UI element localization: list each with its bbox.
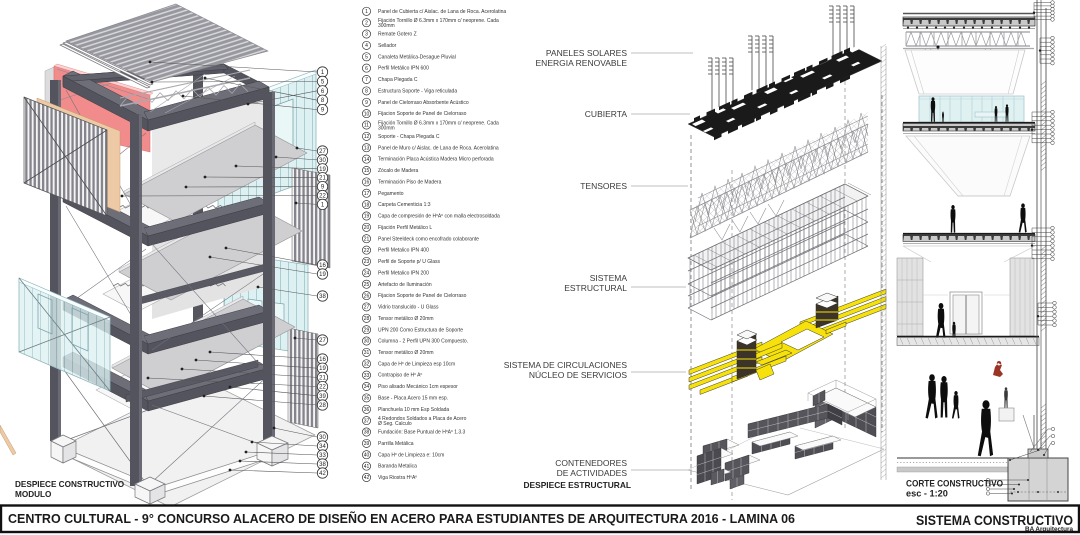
svg-text:19: 19 — [364, 214, 370, 220]
svg-text:33: 33 — [319, 453, 326, 459]
svg-text:Vidrio translucido - U Glass: Vidrio translucido - U Glass — [378, 305, 439, 311]
svg-text:DESPIECE CONSTRUCTIVO: DESPIECE CONSTRUCTIVO — [15, 480, 125, 489]
svg-text:18: 18 — [364, 202, 370, 208]
svg-text:2: 2 — [365, 20, 368, 26]
svg-text:3: 3 — [365, 32, 368, 38]
svg-text:22: 22 — [319, 194, 326, 200]
svg-text:7: 7 — [365, 77, 368, 83]
svg-text:21: 21 — [319, 176, 326, 182]
svg-text:CORTE CONSTRUCTIVO: CORTE CONSTRUCTIVO — [906, 479, 1003, 489]
svg-text:24: 24 — [364, 271, 370, 277]
svg-text:17: 17 — [364, 191, 370, 197]
svg-text:Terminación Placa Acústica Mad: Terminación Placa Acústica Madera Micro … — [378, 157, 494, 163]
svg-text:27: 27 — [319, 338, 326, 344]
svg-text:Carpeta Cementicia 1:3: Carpeta Cementicia 1:3 — [378, 202, 431, 208]
svg-text:Remate Gotero Z: Remate Gotero Z — [378, 32, 417, 38]
svg-text:14: 14 — [364, 157, 370, 163]
svg-text:Perfil Metalico IPN 200: Perfil Metalico IPN 200 — [378, 270, 429, 276]
svg-text:300mm: 300mm — [378, 23, 395, 29]
svg-text:Canaleta Metálica-Desague Pluv: Canaleta Metálica-Desague Pluvial — [378, 54, 456, 60]
svg-text:PANELES SOLARES: PANELES SOLARES — [546, 48, 627, 58]
svg-text:39: 39 — [364, 441, 370, 447]
svg-text:37: 37 — [364, 418, 370, 424]
svg-text:Fundación: Base Puntual de HºA: Fundación: Base Puntual de HºAº 1.3.3 — [378, 430, 466, 436]
svg-text:36: 36 — [364, 407, 370, 413]
svg-text:16: 16 — [319, 357, 326, 363]
svg-text:25: 25 — [364, 282, 370, 288]
svg-text:Columna - 2 Perfil UPN 300 Com: Columna - 2 Perfil UPN 300 Compuesto. — [378, 339, 468, 345]
svg-text:Fijacion Soporte de Panel de C: Fijacion Soporte de Panel de Cielorraso — [378, 293, 467, 299]
svg-text:Fijación Tornillo Ø 6.3mm x 17: Fijación Tornillo Ø 6.3mm x 170mm c/ neo… — [378, 18, 499, 24]
svg-text:NÚCLEO DE SERVICIOS: NÚCLEO DE SERVICIOS — [529, 370, 627, 380]
svg-text:Capa de compresión de HºAº con: Capa de compresión de HºAº con malla ele… — [378, 214, 500, 220]
svg-text:Panel de Cielorraso Absorbente: Panel de Cielorraso Absorbente Acústico — [378, 100, 469, 106]
svg-text:Viga Riostra HºAº: Viga Riostra HºAº — [378, 475, 417, 481]
svg-text:23: 23 — [364, 259, 370, 265]
svg-text:Ø Seg. Calculo: Ø Seg. Calculo — [378, 421, 412, 427]
svg-text:22: 22 — [319, 385, 326, 391]
svg-text:Capa Hº de Limpieza e: 10cm: Capa Hº de Limpieza e: 10cm — [378, 452, 444, 458]
svg-text:Parrilla Metálica: Parrilla Metálica — [378, 441, 414, 447]
svg-text:Baranda Metalica: Baranda Metalica — [378, 464, 417, 470]
svg-text:Panel de Cubierta c/ Aislac. d: Panel de Cubierta c/ Aislac. de Lana de … — [378, 9, 506, 15]
svg-text:Perfil Metalico IPN 400: Perfil Metalico IPN 400 — [378, 248, 429, 254]
svg-text:Tensor metálico Ø 20mm: Tensor metálico Ø 20mm — [378, 350, 434, 356]
svg-text:27: 27 — [364, 305, 370, 311]
svg-text:6: 6 — [365, 66, 368, 72]
svg-text:30: 30 — [319, 158, 326, 164]
svg-text:300mm: 300mm — [378, 126, 395, 132]
svg-text:13: 13 — [364, 145, 370, 151]
svg-text:Piso alisado Mecánico 1cm espe: Piso alisado Mecánico 1cm espesor — [378, 384, 458, 390]
svg-text:16: 16 — [364, 180, 370, 186]
svg-text:30: 30 — [319, 435, 326, 441]
svg-text:Planchuela 10 mm Esp Soldada: Planchuela 10 mm Esp Soldada — [378, 407, 449, 413]
svg-text:Chapa Plegada C: Chapa Plegada C — [378, 77, 418, 83]
svg-text:21: 21 — [319, 375, 326, 381]
svg-text:39: 39 — [319, 394, 326, 400]
svg-text:Fijación Tornillo Ø 6.3mm x 17: Fijación Tornillo Ø 6.3mm x 170mm c/ neo… — [378, 121, 499, 127]
svg-text:26: 26 — [364, 293, 370, 299]
svg-text:4: 4 — [365, 43, 368, 49]
svg-text:38: 38 — [364, 430, 370, 436]
svg-text:Artefacto de Iluminación: Artefacto de Iluminación — [378, 282, 432, 288]
svg-text:34: 34 — [319, 444, 326, 450]
svg-text:BA Arquitectura: BA Arquitectura — [1025, 526, 1073, 533]
svg-text:CUBIERTA: CUBIERTA — [585, 109, 628, 119]
svg-text:Perfil de Soporte p/ U Glass: Perfil de Soporte p/ U Glass — [378, 259, 440, 265]
svg-text:SISTEMA DE CIRCULACIONES: SISTEMA DE CIRCULACIONES — [504, 360, 628, 370]
svg-text:Pegamento: Pegamento — [378, 191, 404, 197]
svg-text:SISTEMA: SISTEMA — [590, 273, 628, 283]
svg-text:16: 16 — [319, 263, 326, 269]
svg-text:Tensor metálico Ø 20mm: Tensor metálico Ø 20mm — [378, 316, 434, 322]
svg-text:Panel de Muro c/ Aislac. de La: Panel de Muro c/ Aislac. de Lana de Roca… — [378, 145, 499, 151]
svg-text:28: 28 — [319, 403, 326, 409]
svg-text:5: 5 — [365, 55, 368, 61]
svg-text:Soporte - Chapa Plegada C: Soporte - Chapa Plegada C — [378, 134, 440, 140]
svg-text:ESTRUCTURAL: ESTRUCTURAL — [564, 283, 627, 293]
svg-text:42: 42 — [364, 475, 370, 481]
svg-text:Capa de Hº de Limpieza esp 10c: Capa de Hº de Limpieza esp 10cm — [378, 361, 455, 367]
svg-text:34: 34 — [364, 384, 370, 390]
svg-text:esc - 1:20: esc - 1:20 — [906, 489, 948, 499]
svg-text:DE ACTIVIDADES: DE ACTIVIDADES — [557, 468, 628, 478]
svg-text:Terminación Piso de Madera: Terminación Piso de Madera — [378, 180, 442, 186]
svg-text:38: 38 — [319, 462, 326, 468]
svg-text:Base - Placa Acero 15 mm esp.: Base - Placa Acero 15 mm esp. — [378, 396, 448, 402]
svg-text:TENSORES: TENSORES — [580, 181, 627, 191]
svg-text:Estructura Soporte - Viga reti: Estructura Soporte - Viga reticulada — [378, 89, 457, 95]
svg-text:21: 21 — [364, 236, 370, 242]
svg-text:MODULO: MODULO — [15, 490, 52, 499]
svg-text:ENERGIA RENOVABLE: ENERGIA RENOVABLE — [536, 58, 628, 68]
svg-text:UPN 200 Como Estructura de Sop: UPN 200 Como Estructura de Soporte — [378, 327, 463, 333]
svg-text:Sellador: Sellador — [378, 43, 397, 49]
svg-text:Panel Steeldeck como encofrado: Panel Steeldeck como encofrado colaboran… — [378, 236, 479, 242]
svg-text:CENTRO CULTURAL - 9° CONCURSO: CENTRO CULTURAL - 9° CONCURSO ALACERO DE… — [8, 511, 795, 526]
svg-text:31: 31 — [364, 350, 370, 356]
svg-text:41: 41 — [364, 464, 370, 470]
svg-text:Fijacion Soporte de Panel de C: Fijacion Soporte de Panel de Cielorraso — [378, 111, 467, 117]
svg-text:22: 22 — [364, 248, 370, 254]
svg-text:19: 19 — [319, 167, 326, 173]
svg-text:DESPIECE ESTRUCTURAL: DESPIECE ESTRUCTURAL — [524, 480, 632, 490]
svg-text:8: 8 — [365, 89, 368, 95]
svg-text:28: 28 — [364, 316, 370, 322]
svg-text:20: 20 — [364, 225, 370, 231]
svg-text:42: 42 — [319, 471, 326, 477]
svg-text:Fijación Perfil Metálico L: Fijación Perfil Metálico L — [378, 225, 432, 231]
svg-text:CONTENEDORES: CONTENEDORES — [555, 458, 627, 468]
svg-text:1: 1 — [365, 9, 368, 15]
svg-text:Contrapiso de Hº Aº: Contrapiso de Hº Aº — [378, 373, 422, 379]
svg-text:10: 10 — [364, 111, 370, 117]
svg-text:35: 35 — [364, 396, 370, 402]
svg-text:29: 29 — [364, 327, 370, 333]
svg-text:15: 15 — [364, 168, 370, 174]
svg-text:19: 19 — [319, 366, 326, 372]
svg-text:33: 33 — [364, 373, 370, 379]
svg-text:30: 30 — [364, 339, 370, 345]
svg-text:Perfil Metálico IPN 600: Perfil Metálico IPN 600 — [378, 66, 429, 72]
svg-text:32: 32 — [364, 362, 370, 368]
svg-text:38: 38 — [319, 294, 326, 300]
svg-text:12: 12 — [364, 134, 370, 140]
svg-text:19: 19 — [319, 272, 326, 278]
svg-text:27: 27 — [319, 149, 326, 155]
svg-text:Zócalo de Madera: Zócalo de Madera — [378, 168, 419, 174]
svg-text:9: 9 — [365, 100, 368, 106]
svg-text:40: 40 — [364, 452, 370, 458]
svg-text:11: 11 — [364, 123, 369, 129]
